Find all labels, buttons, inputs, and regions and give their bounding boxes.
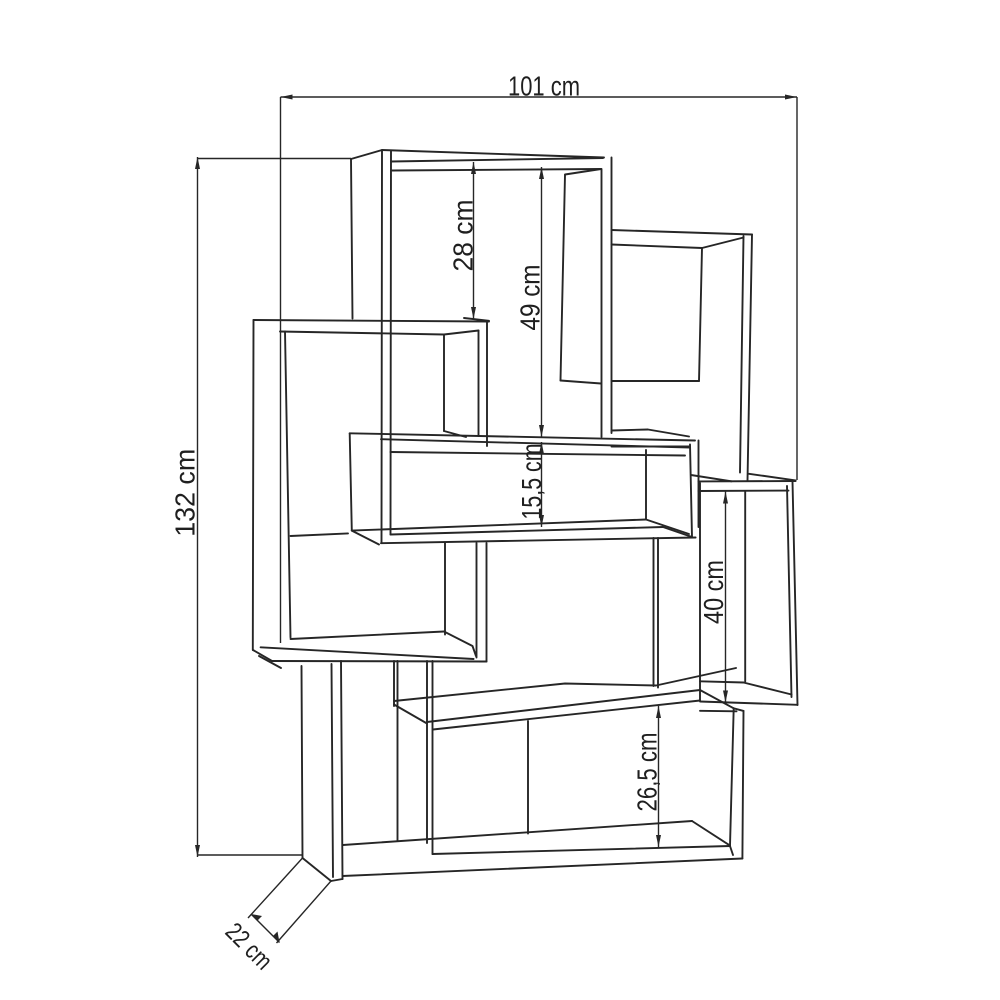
svg-text:49 cm: 49 cm (515, 265, 546, 331)
svg-text:22 cm: 22 cm (220, 917, 278, 975)
svg-text:101 cm: 101 cm (508, 71, 580, 102)
svg-text:15,5 cm: 15,5 cm (516, 444, 547, 520)
svg-text:40 cm: 40 cm (698, 560, 729, 624)
svg-text:132 cm: 132 cm (170, 449, 201, 537)
svg-text:28 cm: 28 cm (448, 200, 479, 272)
svg-text:26,5 cm: 26,5 cm (632, 733, 663, 812)
